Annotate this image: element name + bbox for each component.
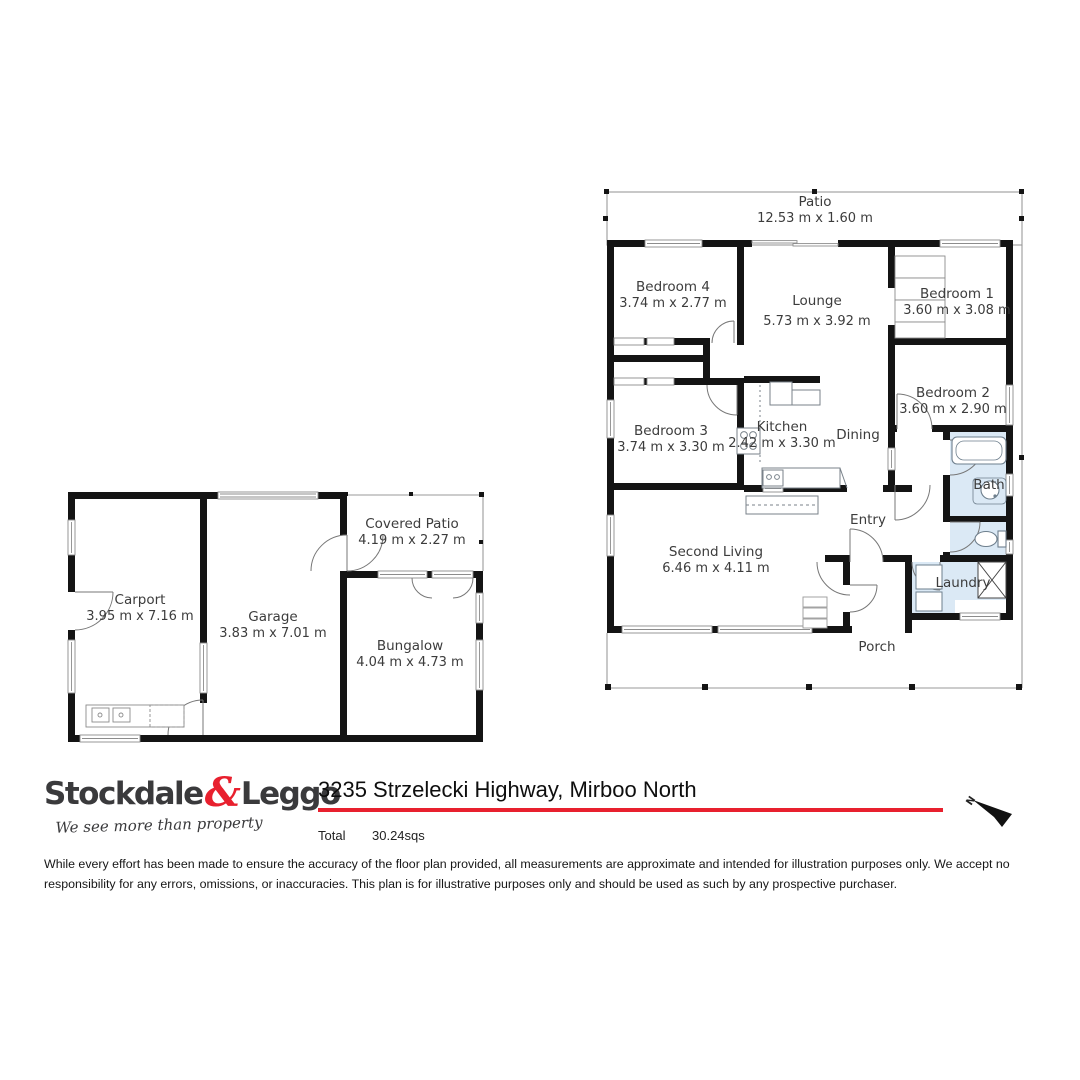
room-label-lounge: Lounge 5.73 m x 3.92 m <box>763 293 870 330</box>
floorplan-graphics: N <box>0 0 1080 1080</box>
room-label-bedroom-1: Bedroom 1 3.60 m x 3.08 m <box>903 286 1010 319</box>
address-divider-line <box>318 808 943 812</box>
disclaimer-text: While every effort has been made to ensu… <box>44 855 1036 894</box>
room-label-bungalow: Bungalow 4.04 m x 4.73 m <box>356 638 463 671</box>
property-address: 3235 Strzelecki Highway, Mirboo North <box>318 777 697 803</box>
bedroom4-door <box>712 321 734 343</box>
room-label-laundry: Laundry <box>935 575 990 591</box>
north-label: N <box>964 795 978 808</box>
total-area-value: 30.24sqs <box>372 828 425 843</box>
room-label-carport: Carport 3.95 m x 7.16 m <box>86 592 193 625</box>
room-label-bedroom-2: Bedroom 2 3.60 m x 2.90 m <box>899 385 1006 418</box>
room-label-bedroom-4: Bedroom 4 3.74 m x 2.77 m <box>619 279 726 312</box>
bungalow-doors <box>412 578 473 598</box>
brand-wordmark: Stockdale&Leggo <box>44 776 340 812</box>
brand-tagline: We see more than property <box>44 813 274 837</box>
room-label-bedroom-3: Bedroom 3 3.74 m x 3.30 m <box>617 423 724 456</box>
north-arrow: N <box>964 795 1012 827</box>
front-door <box>850 529 883 562</box>
room-label-patio: Patio 12.53 m x 1.60 m <box>757 194 873 227</box>
floorplan-page: N Patio 12.53 m x 1.60 m Bedroom 4 3.74 … <box>0 0 1080 1080</box>
laundry-floor-notch <box>955 600 1006 613</box>
brand-ampersand: & <box>205 778 241 808</box>
room-label-dining: Dining <box>836 427 880 443</box>
room-label-covered-patio: Covered Patio 4.19 m x 2.27 m <box>358 516 465 549</box>
brand-word-left: Stockdale <box>44 776 203 812</box>
room-label-garage: Garage 3.83 m x 7.01 m <box>219 609 326 642</box>
room-label-second-living: Second Living 6.46 m x 4.11 m <box>662 544 769 577</box>
room-label-bath: Bath <box>973 477 1004 493</box>
bedroom3-door <box>707 385 737 415</box>
room-label-kitchen: Kitchen 2.42 m x 3.30 m <box>728 419 835 452</box>
room-label-porch: Porch <box>858 639 895 655</box>
brand-logo: Stockdale&Leggo We see more than propert… <box>44 776 340 834</box>
carport-bench <box>86 705 184 727</box>
vestibule-door <box>850 585 877 612</box>
porch-steps <box>803 597 827 628</box>
total-area-label: Total <box>318 828 345 843</box>
room-label-entry: Entry <box>850 512 886 528</box>
